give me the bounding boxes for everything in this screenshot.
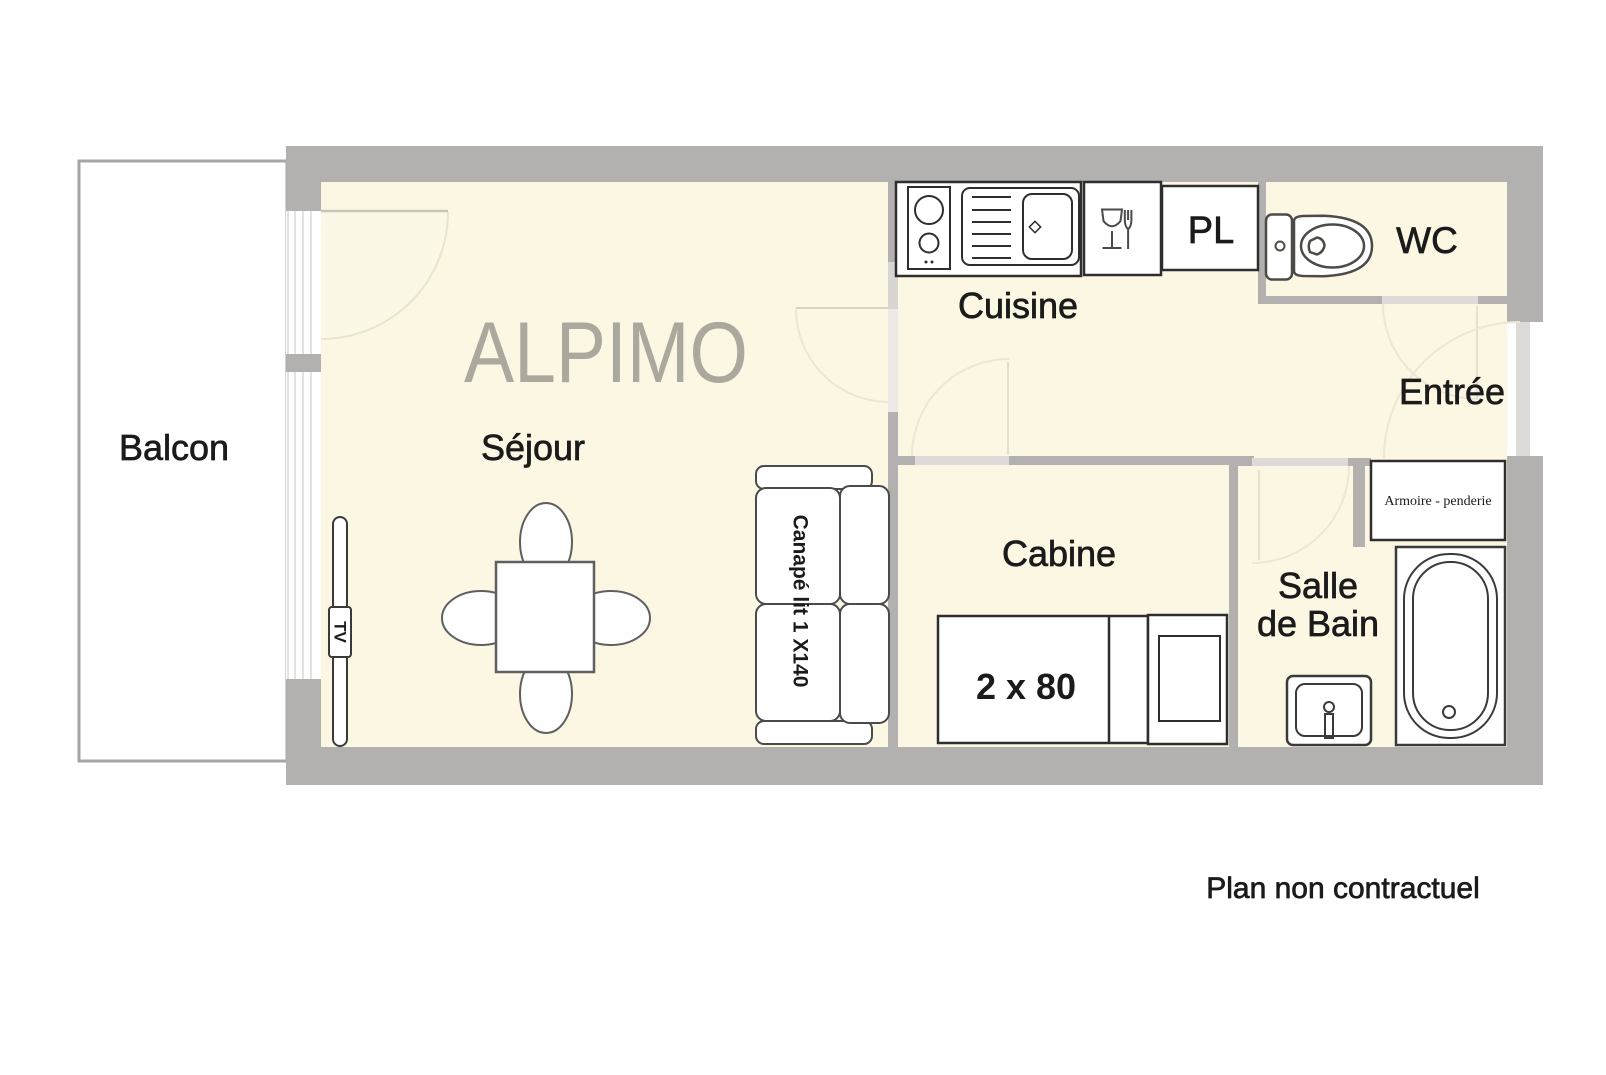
svg-text:Plan non contractuel: Plan non contractuel [1206, 872, 1480, 905]
svg-text:Canapé lit 1 X140: Canapé lit 1 X140 [789, 515, 812, 688]
svg-text:Balcon: Balcon [119, 427, 229, 468]
svg-text:Cuisine: Cuisine [958, 285, 1078, 326]
svg-text:Armoire - penderie: Armoire - penderie [1384, 494, 1491, 509]
svg-text:TV: TV [331, 621, 350, 643]
svg-text:WC: WC [1396, 220, 1458, 261]
svg-text:Cabine: Cabine [1002, 533, 1116, 574]
svg-text:Séjour: Séjour [481, 427, 585, 468]
svg-text:PL: PL [1188, 210, 1234, 252]
svg-text:de Bain: de Bain [1257, 603, 1379, 644]
svg-text:Entrée: Entrée [1399, 371, 1505, 412]
svg-text:ALPIMO: ALPIMO [464, 305, 748, 401]
svg-text:2 x 80: 2 x 80 [976, 666, 1076, 707]
svg-text:Salle: Salle [1278, 565, 1358, 606]
